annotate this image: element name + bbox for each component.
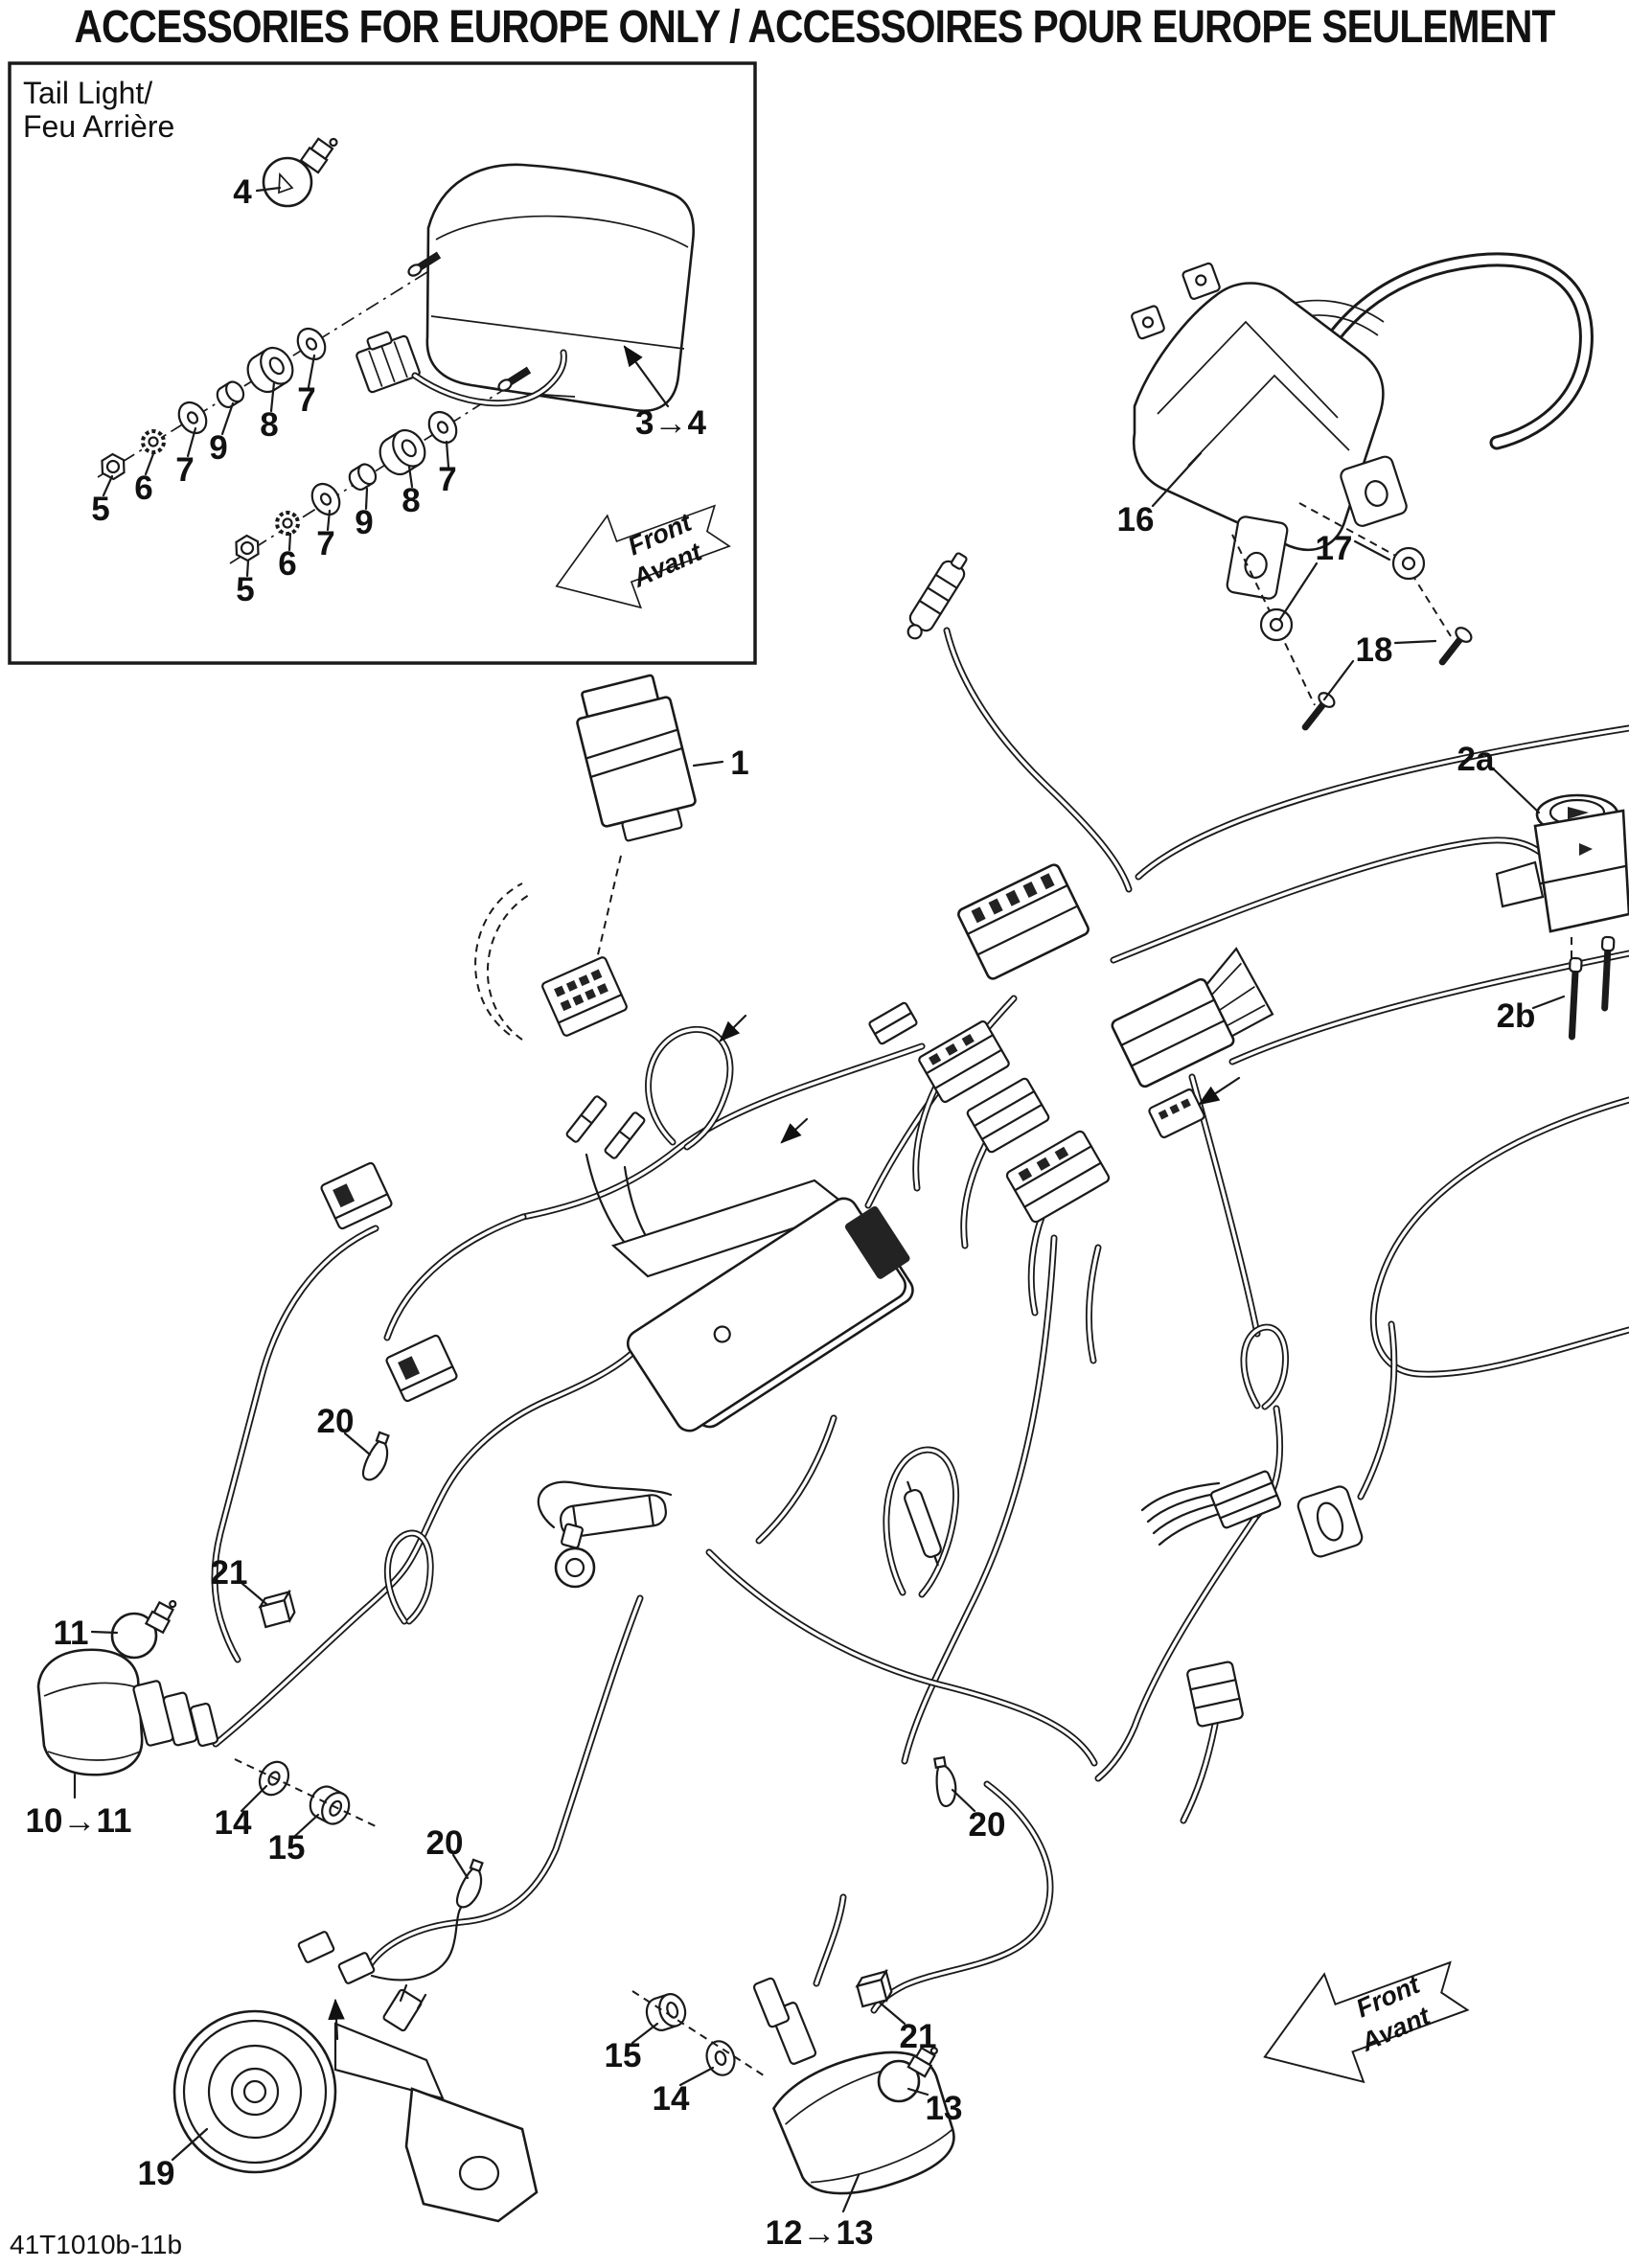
inset-label-line2: Feu Arrière	[23, 109, 174, 144]
switch-screws-2b	[1566, 937, 1614, 1038]
callout-7d: 7	[316, 525, 334, 562]
connector-small-sensor	[868, 1002, 917, 1045]
parts-diagram-page: ACCESSORIES FOR EUROPE ONLY / ACCESSOIRE…	[0, 0, 1629, 2268]
callout-2a: 2a	[1457, 741, 1495, 778]
callout-7b: 7	[175, 451, 194, 489]
inline-fuse	[900, 1479, 946, 1569]
grommet-15-left	[305, 1782, 354, 1829]
callout-7a: 7	[297, 381, 315, 419]
callout-20a: 20	[317, 1403, 355, 1440]
callout-8b: 8	[402, 482, 420, 519]
diagram-canvas: ACCESSORIES FOR EUROPE ONLY / ACCESSOIRE…	[0, 0, 1629, 2268]
callout-7c: 7	[438, 461, 456, 498]
flat-washer	[307, 479, 345, 520]
ecu-module	[613, 1180, 929, 1442]
spade-terminal	[565, 1095, 607, 1143]
callout-20b: 20	[426, 1824, 464, 1862]
callout-9a: 9	[209, 429, 227, 467]
relay-connector	[541, 956, 628, 1037]
callout-14b: 14	[653, 2080, 690, 2118]
connector-left-1	[320, 1162, 393, 1230]
callout-6a: 6	[134, 470, 152, 507]
inset-label-line1: Tail Light/	[23, 76, 152, 110]
front-direction-arrow-bottom: Front Avant	[1245, 1933, 1479, 2111]
grommet	[374, 424, 431, 480]
wiring-harness	[215, 630, 1629, 2010]
callout-1: 1	[730, 745, 748, 782]
tail-light-inset: Tail Light/ Feu Arrière	[10, 63, 755, 663]
washer-14-bottom	[702, 2038, 739, 2079]
callout-8a: 8	[260, 406, 278, 444]
callout-18: 18	[1356, 631, 1393, 669]
drawing-number: 41T1010b-11b	[10, 2230, 182, 2259]
lock-washer	[273, 509, 302, 538]
turn-signal-left	[38, 1650, 218, 1775]
flat-washer	[292, 324, 331, 365]
callout-4: 4	[233, 173, 252, 211]
flat-washer	[173, 398, 212, 439]
connector-mid-2	[966, 1077, 1049, 1153]
callout-11: 11	[54, 1615, 89, 1652]
callout-10-11: 10→11	[26, 1802, 132, 1840]
callout-15b: 15	[605, 2037, 642, 2074]
tail-light-bulb	[264, 130, 339, 206]
front-direction-arrow-inset: Front Avant	[539, 480, 739, 632]
antenna-connector	[901, 549, 974, 644]
callout-15a: 15	[268, 1829, 306, 1867]
callout-2b: 2b	[1497, 997, 1536, 1035]
callout-5b: 5	[236, 571, 254, 608]
clip-21	[856, 1971, 893, 2006]
connector-socket	[1296, 1484, 1364, 1559]
relay	[570, 672, 700, 845]
connector-large-right	[1106, 947, 1277, 1088]
tail-light-lamp	[353, 165, 694, 411]
turn-signal-bulb-11	[112, 1594, 178, 1658]
grommet	[241, 342, 299, 398]
horn-connector	[298, 1931, 334, 1962]
page-title: ACCESSORIES FOR EUROPE ONLY / ACCESSOIRE…	[75, 2, 1556, 53]
callout-9b: 9	[355, 504, 373, 541]
callout-13: 13	[926, 2090, 963, 2127]
grommet-15-bottom	[643, 1991, 690, 2034]
ring-terminal	[556, 1494, 668, 1587]
clip-21	[259, 1592, 296, 1627]
cable-tie-20	[932, 1756, 959, 1807]
callout-19: 19	[138, 2155, 175, 2192]
spacer	[346, 461, 379, 493]
callout-14a: 14	[215, 1804, 252, 1842]
connector-left-2	[385, 1335, 458, 1403]
flat-washer	[424, 407, 462, 448]
callout-21a: 21	[211, 1554, 248, 1592]
callout-20c: 20	[969, 1806, 1006, 1844]
cable-tie-20	[360, 1432, 395, 1483]
callout-16: 16	[1117, 501, 1155, 538]
connector-fanout	[1210, 1470, 1281, 1528]
connector-mid-3	[1005, 1130, 1111, 1224]
nut	[97, 451, 129, 483]
spacer	[214, 378, 247, 410]
horn-connector	[338, 1952, 375, 1983]
callout-21b: 21	[900, 2018, 937, 2055]
callout-17: 17	[1316, 530, 1353, 567]
callout-6b: 6	[278, 545, 296, 583]
callout-5a: 5	[91, 491, 109, 528]
spade-terminal	[604, 1111, 645, 1159]
horn	[174, 1931, 537, 2221]
callout-3-4: 3→4	[635, 404, 706, 442]
connector-large-top	[956, 863, 1090, 981]
connector-bottom-right	[1186, 1661, 1243, 1728]
callout-12-13: 12→13	[766, 2214, 874, 2252]
